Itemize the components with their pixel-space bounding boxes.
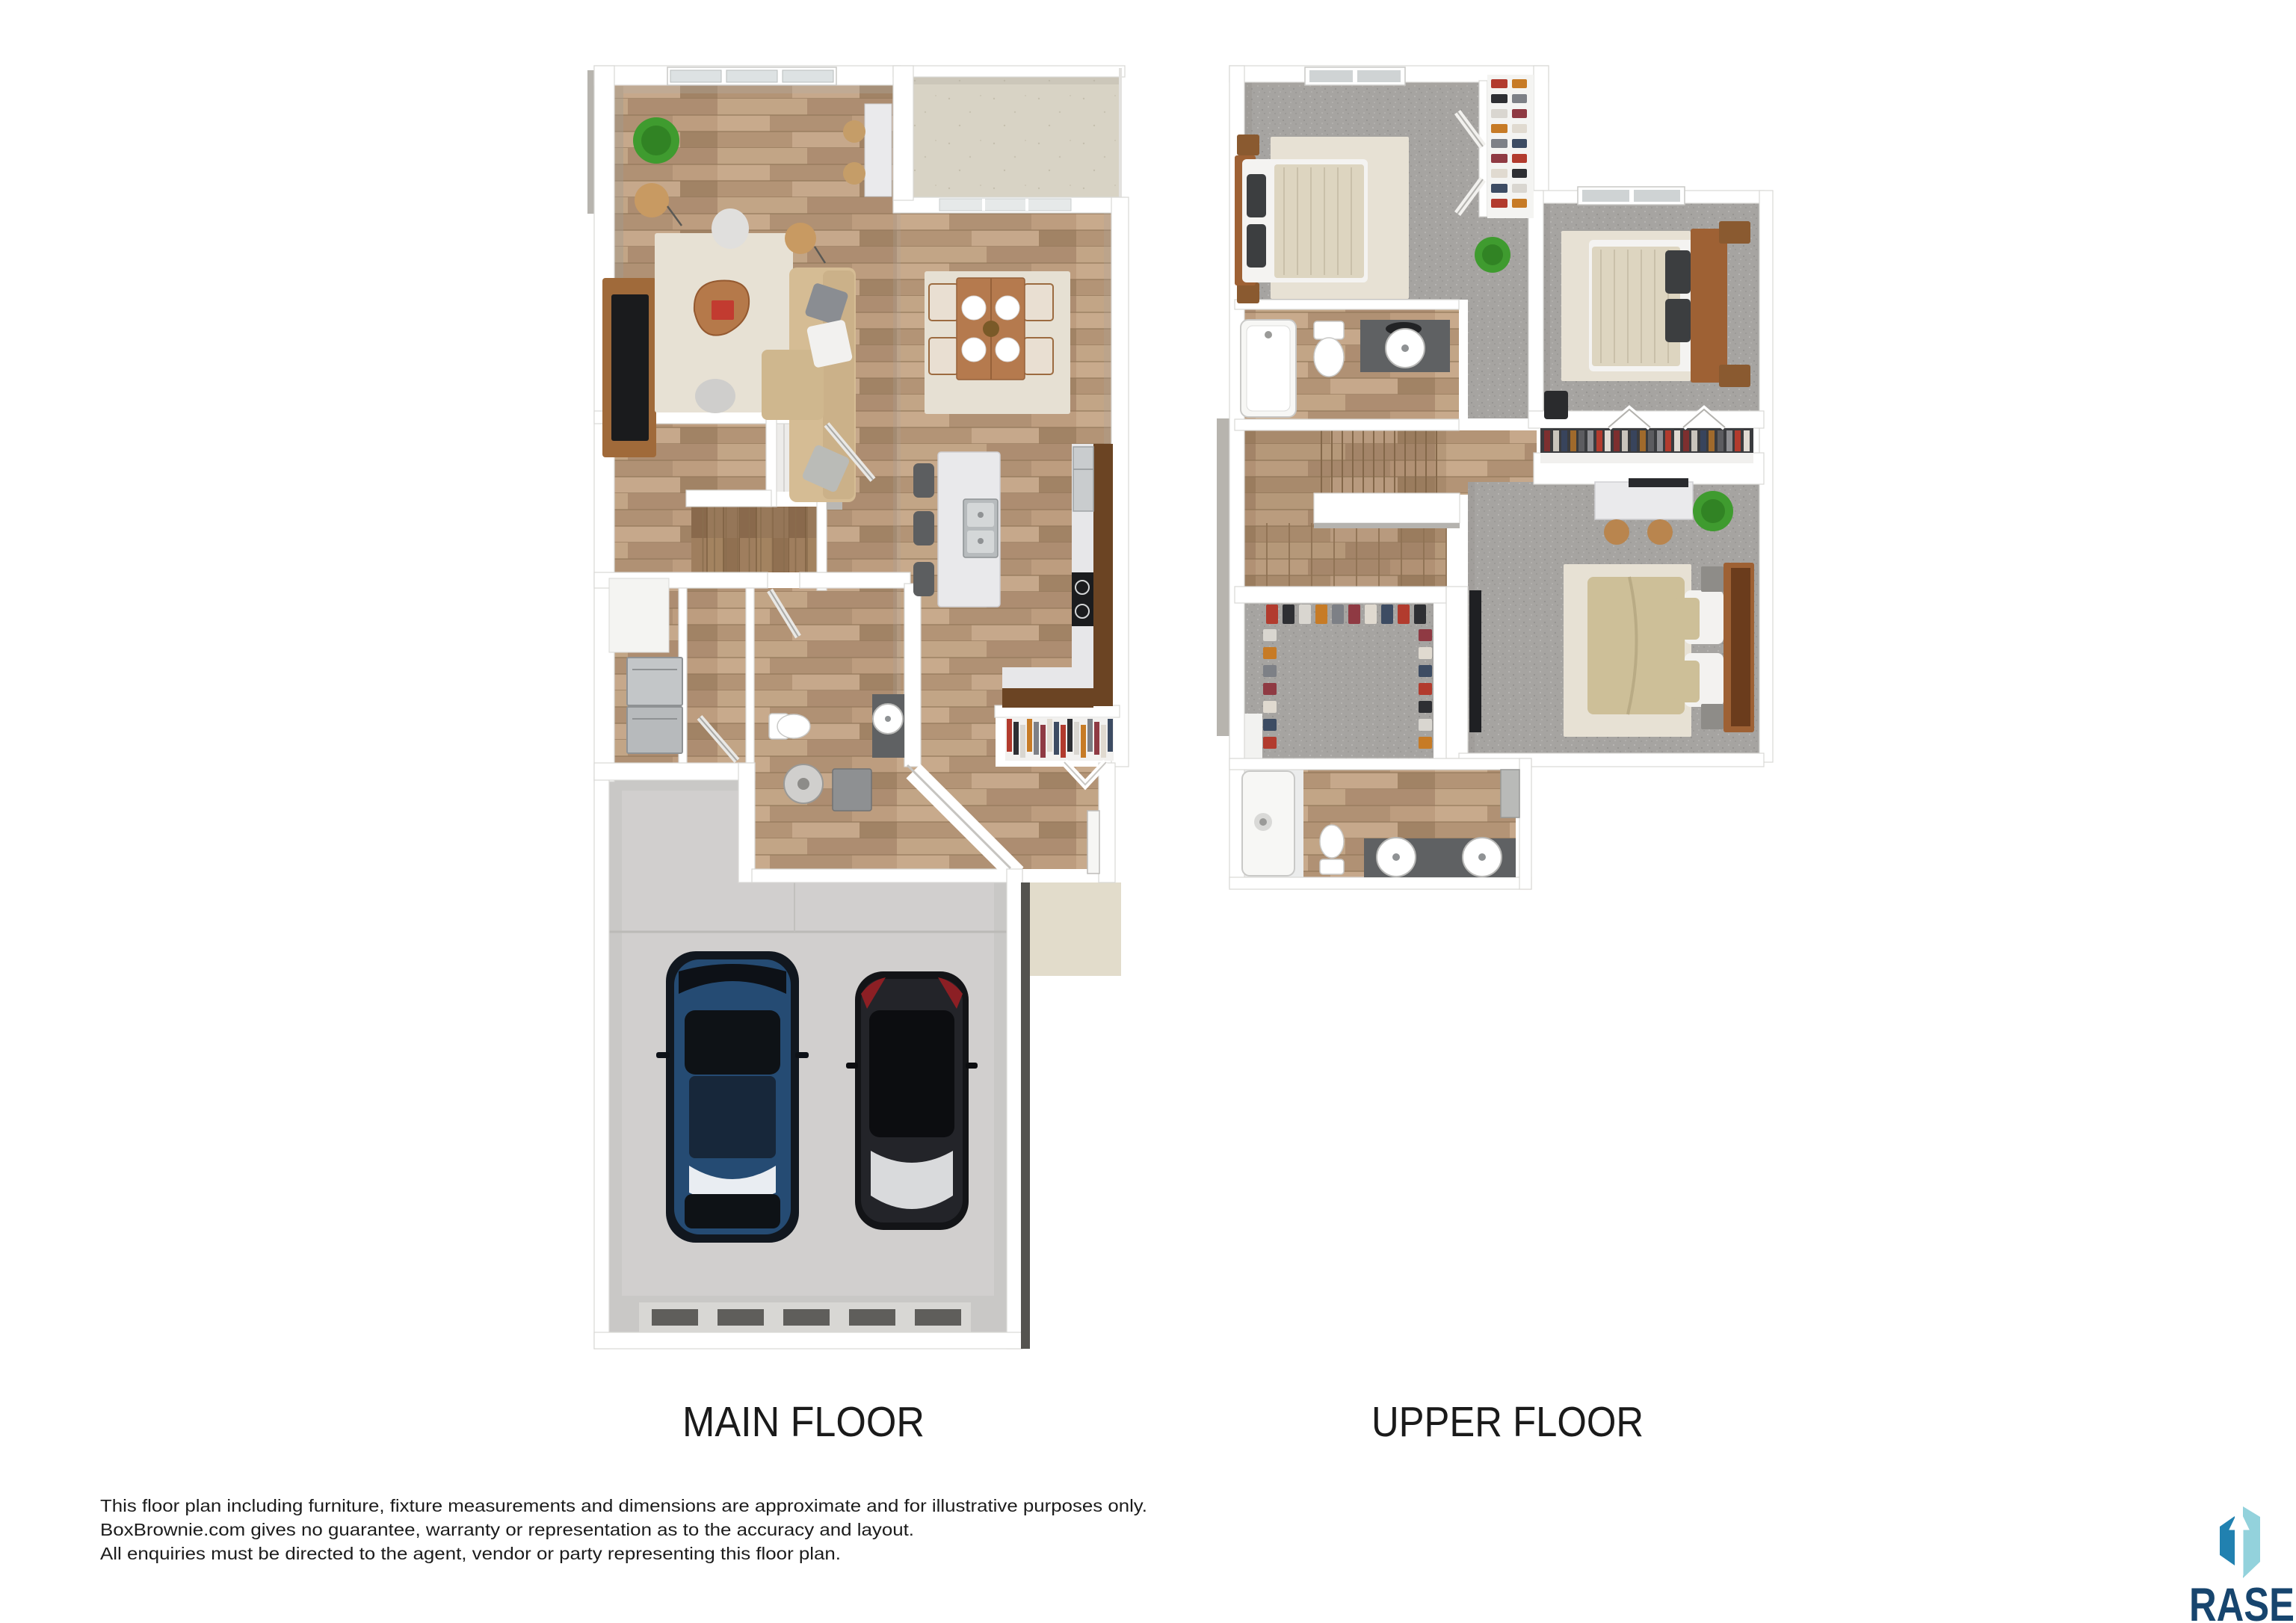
svg-text:This floor plan including furn: This floor plan including furniture, fix… bbox=[100, 1496, 1147, 1515]
svg-text:BoxBrownie.com gives no guaran: BoxBrownie.com gives no guarantee, warra… bbox=[100, 1520, 914, 1539]
svg-text:MAIN FLOOR: MAIN FLOOR bbox=[682, 1398, 925, 1446]
svg-text:RASE: RASE bbox=[2189, 1579, 2295, 1623]
svg-text:UPPER FLOOR: UPPER FLOOR bbox=[1371, 1398, 1644, 1446]
svg-text:All enquiries must be directed: All enquiries must be directed to the ag… bbox=[100, 1544, 841, 1563]
